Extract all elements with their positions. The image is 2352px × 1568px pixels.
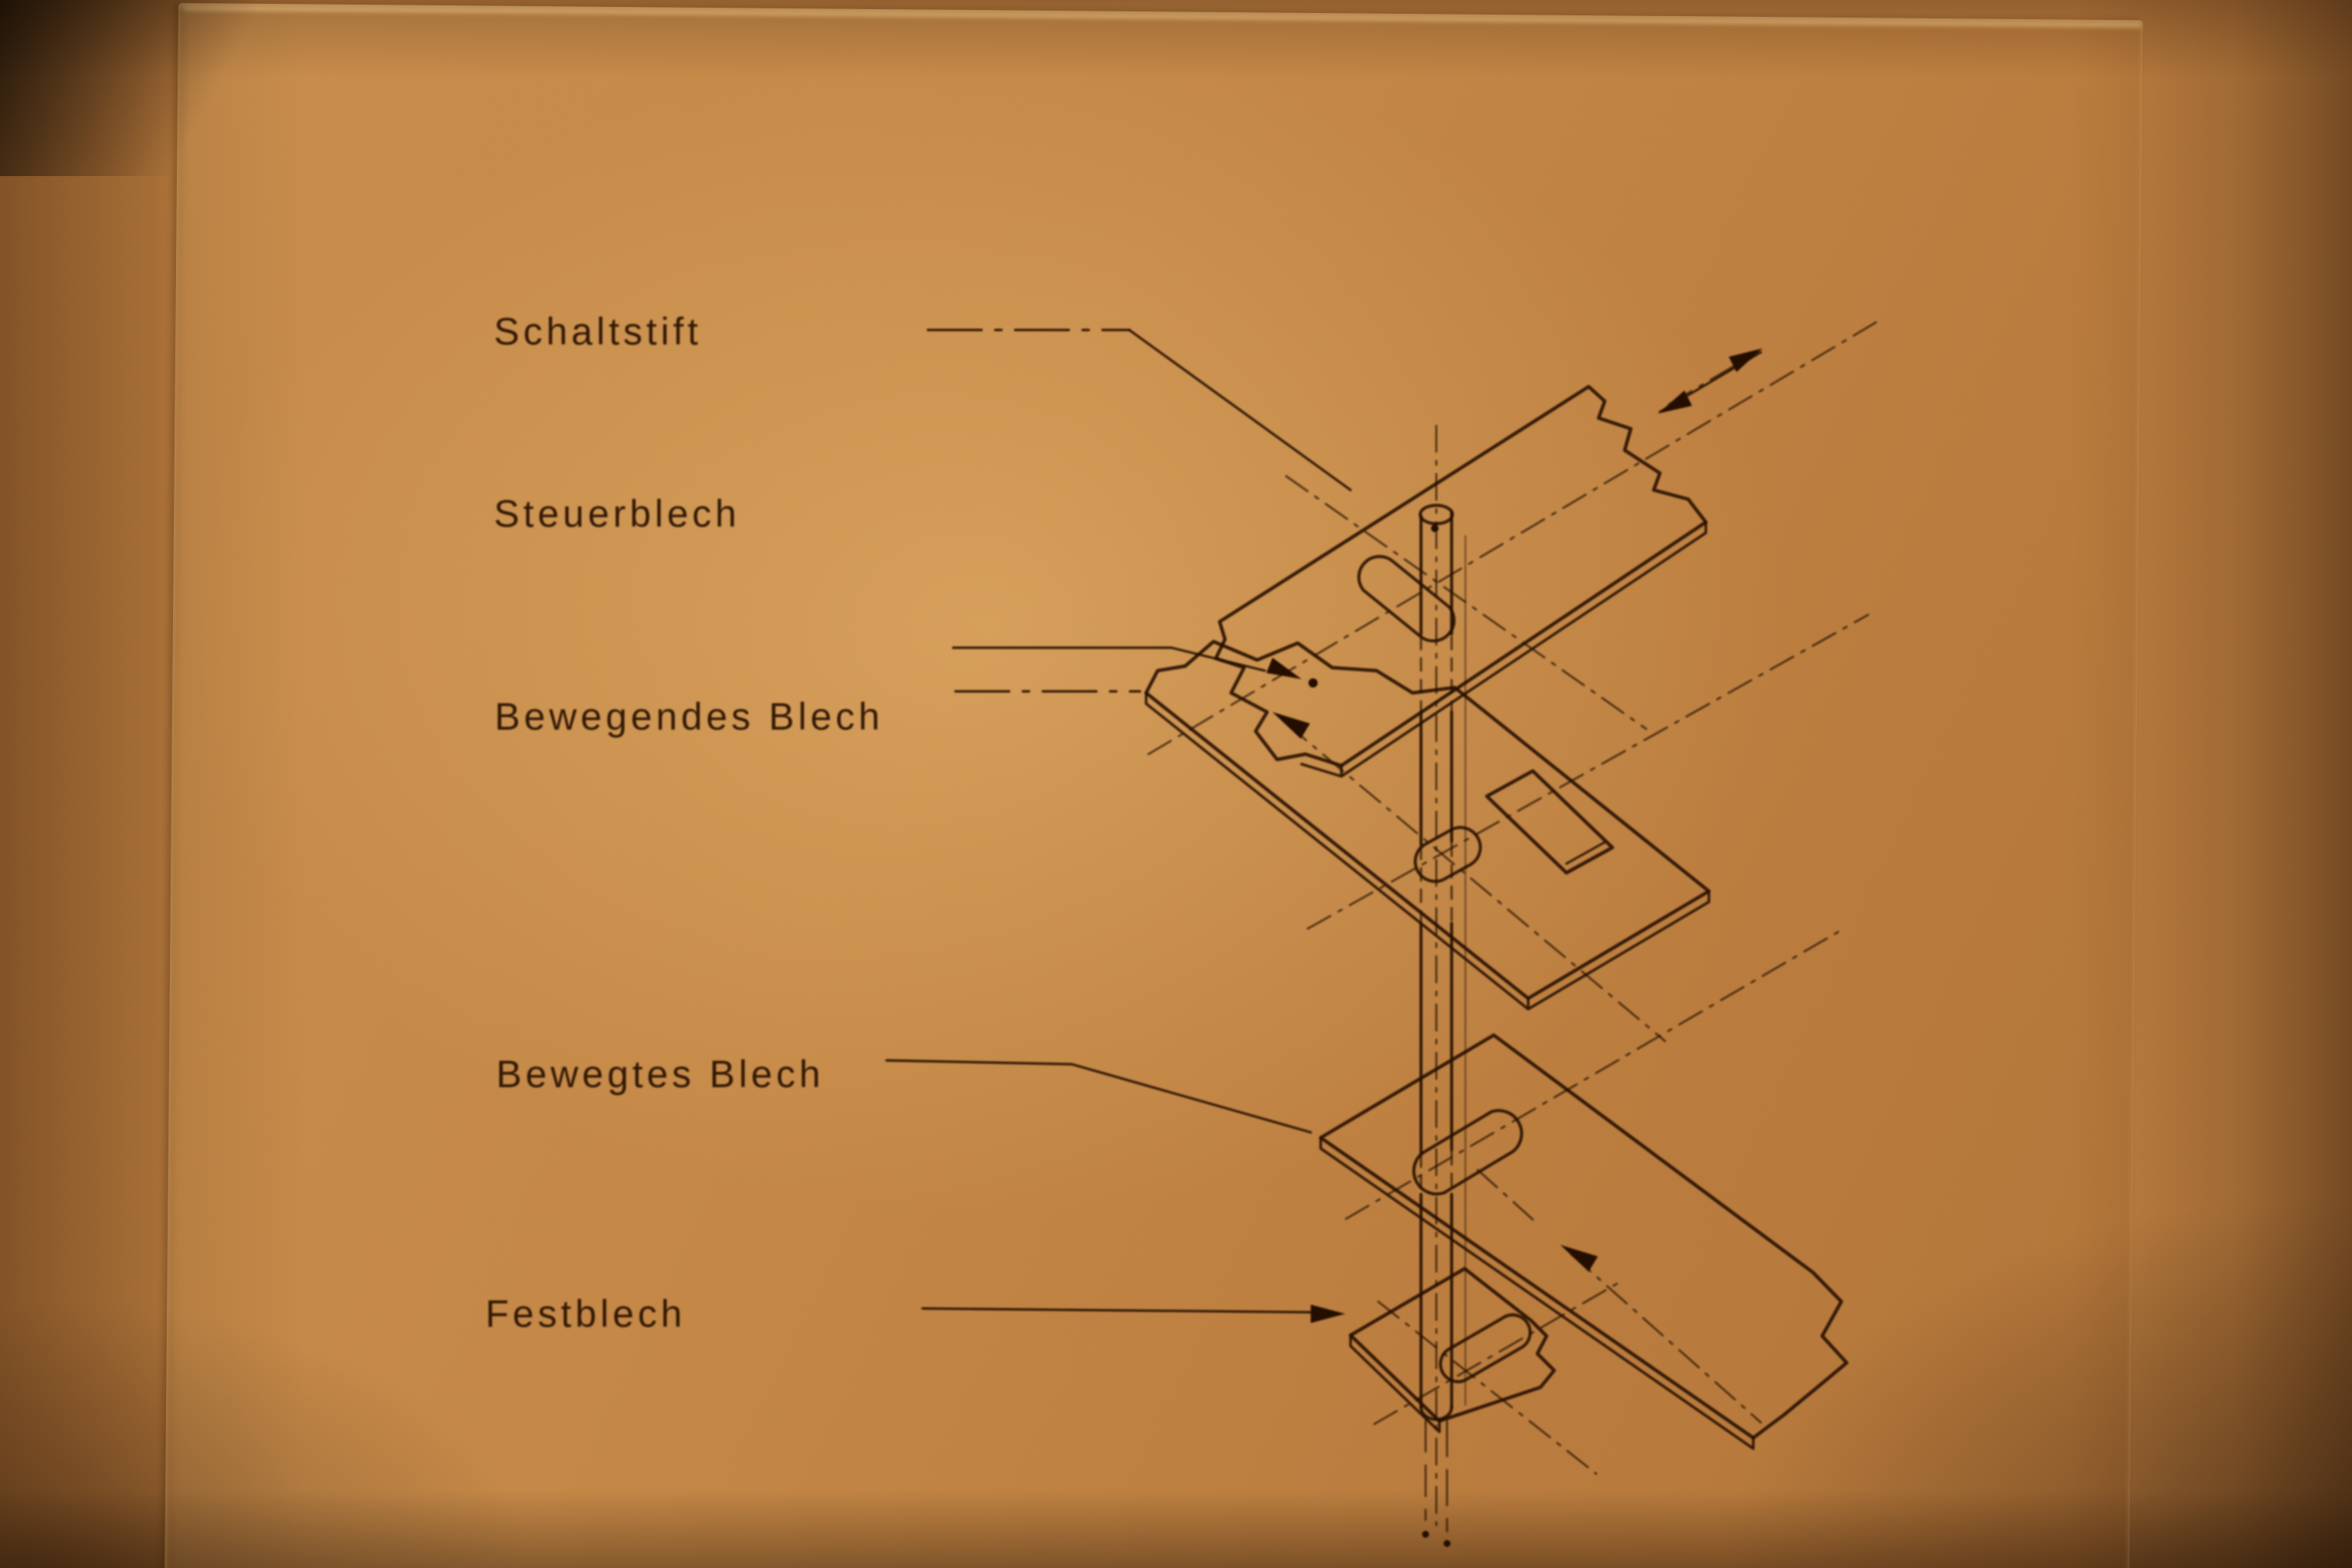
steuerblech-target-dot	[1308, 678, 1318, 688]
center-lines	[1148, 322, 1877, 1525]
plate-bewegtes-pin-slot	[1414, 1111, 1522, 1194]
leader-arrowheads	[1266, 658, 1345, 1323]
plate-bewegendes-pin-hole	[1416, 828, 1481, 881]
plate1-axis-upright	[1148, 322, 1877, 754]
leader-lines	[887, 330, 1351, 1312]
plate2-axis-upright	[1308, 615, 1868, 929]
plate3-axis-hole	[1478, 1170, 1539, 1225]
plate-festblech-pin-slot	[1440, 1315, 1530, 1381]
festblech-arrowhead	[1311, 1305, 1345, 1323]
leader-schaltstift-diagonal	[1129, 330, 1351, 490]
leader-festblech	[923, 1308, 1314, 1312]
plate-bewegendes-motion-arrowhead	[1272, 712, 1310, 739]
plate-bewegtes-outline	[1321, 1035, 1847, 1438]
plate-bewegendes-outline	[1146, 642, 1709, 998]
plate-bewegendes-thickness	[1146, 693, 1709, 1009]
labels: Schaltstift Steuerblech Bewegendes Blech…	[485, 310, 884, 1335]
plate3-axis-downright	[1571, 1254, 1761, 1423]
steuerblech-arrowhead	[1266, 658, 1302, 679]
plate-steuerblech-thickness	[1302, 522, 1706, 776]
pin-top-face	[1420, 505, 1452, 524]
label-bewegendes-blech: Bewegendes Blech	[495, 695, 884, 738]
plate-steuerblech-outline	[1216, 387, 1706, 766]
plate-bewegendes-blech	[1146, 642, 1709, 1009]
pin-top-dot	[1431, 524, 1439, 532]
plate-bewegtes-blech	[1321, 1035, 1847, 1449]
photo-of-diagram: Schaltstift Steuerblech Bewegendes Blech…	[0, 0, 2352, 1568]
plate-steuerblech-slot	[1359, 557, 1454, 641]
diagram-canvas: Schaltstift Steuerblech Bewegendes Blech…	[0, 0, 2352, 1568]
label-schaltstift: Schaltstift	[494, 310, 702, 353]
plate-bewegendes-rect-slot	[1487, 771, 1612, 873]
label-festblech: Festblech	[485, 1292, 686, 1335]
label-steuerblech: Steuerblech	[494, 492, 740, 535]
plate2-axis-downright	[1286, 724, 1665, 1041]
plate-bewegtes-motion-arrowhead	[1560, 1245, 1598, 1272]
label-bewegtes-blech: Bewegtes Blech	[496, 1053, 825, 1096]
motion-arrows	[1658, 348, 1762, 413]
leader-bewegtes-blech	[887, 1060, 1311, 1132]
